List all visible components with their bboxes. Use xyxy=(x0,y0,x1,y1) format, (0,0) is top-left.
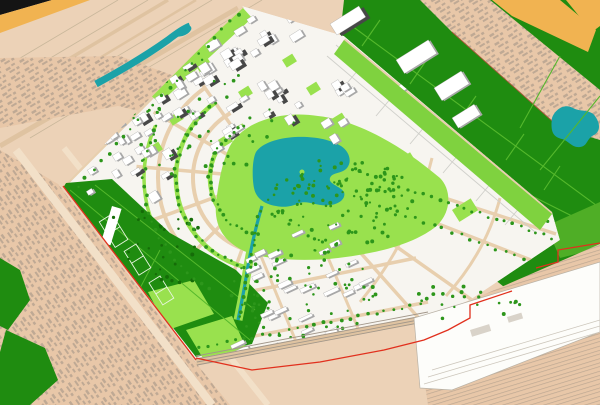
tree xyxy=(307,187,310,190)
tree xyxy=(377,189,380,192)
tree xyxy=(216,147,218,149)
tree xyxy=(158,164,161,167)
tree xyxy=(288,317,291,320)
tree xyxy=(375,216,378,219)
tree xyxy=(307,266,310,269)
tree xyxy=(151,104,154,107)
tree xyxy=(268,333,271,336)
tree xyxy=(419,302,422,305)
tree xyxy=(502,312,506,316)
tree xyxy=(550,238,553,241)
tree xyxy=(249,266,252,269)
tree xyxy=(487,216,490,219)
tree xyxy=(406,207,409,210)
tree xyxy=(244,163,248,167)
tree xyxy=(341,214,344,217)
tree xyxy=(495,218,498,221)
tree xyxy=(368,299,370,301)
tree xyxy=(244,302,248,306)
tree xyxy=(356,314,360,318)
tree xyxy=(375,212,378,215)
tree xyxy=(311,194,315,198)
tree xyxy=(201,59,203,61)
tree xyxy=(438,198,442,202)
tree xyxy=(160,278,164,282)
tree xyxy=(392,175,396,179)
tree xyxy=(189,127,192,130)
tree xyxy=(186,133,190,137)
tree xyxy=(169,155,171,157)
tree xyxy=(281,211,284,214)
tree xyxy=(251,306,255,310)
tree xyxy=(374,175,378,179)
tree xyxy=(127,258,130,261)
tree xyxy=(528,229,531,232)
tree xyxy=(468,238,472,242)
tree xyxy=(317,159,320,162)
tree xyxy=(312,202,315,205)
tree xyxy=(211,158,214,161)
tree xyxy=(127,251,130,254)
tree xyxy=(249,260,253,264)
tree xyxy=(235,224,238,227)
masterplan-3d-render xyxy=(0,0,600,405)
tree xyxy=(206,175,210,179)
tree xyxy=(154,139,157,142)
tree xyxy=(441,292,445,296)
tree xyxy=(137,218,140,221)
tree xyxy=(154,228,158,232)
tree xyxy=(369,201,371,203)
tree xyxy=(387,208,389,210)
tree xyxy=(99,159,102,162)
tree xyxy=(242,266,245,269)
tree xyxy=(335,223,337,225)
tree xyxy=(201,239,204,242)
tree xyxy=(288,328,291,331)
tree xyxy=(230,259,233,262)
tree xyxy=(306,303,308,305)
tree xyxy=(328,201,332,205)
tree xyxy=(164,243,167,246)
tree xyxy=(518,303,521,306)
tree xyxy=(330,312,333,315)
tree xyxy=(283,258,286,261)
tree xyxy=(408,303,411,306)
tree xyxy=(276,279,279,282)
tree xyxy=(339,161,343,165)
tree xyxy=(319,169,323,173)
tree xyxy=(433,223,436,226)
tree xyxy=(233,280,235,282)
tree xyxy=(510,221,514,225)
tree xyxy=(370,182,374,186)
tree xyxy=(335,193,339,197)
tree xyxy=(270,119,273,122)
tree xyxy=(141,176,144,179)
tree xyxy=(223,256,226,259)
tree xyxy=(346,177,348,179)
tree xyxy=(237,74,240,77)
tree xyxy=(240,227,243,230)
tree xyxy=(143,217,145,219)
tree xyxy=(251,140,254,143)
tree xyxy=(203,111,206,114)
tree xyxy=(112,216,115,219)
tree xyxy=(278,332,280,334)
tree xyxy=(391,182,394,185)
tree xyxy=(382,309,385,312)
tree xyxy=(336,325,339,328)
tree xyxy=(186,110,190,114)
tree xyxy=(360,198,363,201)
tree xyxy=(178,153,181,156)
tree xyxy=(169,86,173,90)
tree xyxy=(365,194,368,197)
tree xyxy=(308,183,311,186)
tree xyxy=(207,45,210,48)
tree xyxy=(400,176,403,179)
tree xyxy=(155,125,157,127)
tree xyxy=(147,212,150,215)
tree xyxy=(296,327,298,329)
tree xyxy=(273,267,277,271)
tree xyxy=(347,229,351,233)
tree xyxy=(406,188,409,191)
tree xyxy=(354,167,357,170)
tree xyxy=(381,231,385,235)
tree xyxy=(383,178,386,181)
tree xyxy=(325,325,328,328)
tree xyxy=(273,194,276,197)
tree xyxy=(132,117,134,119)
tree xyxy=(226,155,229,158)
tree xyxy=(288,277,292,281)
tree xyxy=(479,211,482,214)
tree xyxy=(351,168,354,171)
tree xyxy=(410,199,414,203)
tree xyxy=(192,277,195,280)
tree xyxy=(430,195,433,198)
tree xyxy=(189,218,193,222)
tree xyxy=(77,186,79,188)
tree xyxy=(193,245,196,248)
tree xyxy=(383,223,386,226)
tree xyxy=(220,142,224,146)
tree xyxy=(213,80,216,83)
tree xyxy=(158,237,160,239)
tree xyxy=(340,184,343,187)
tree xyxy=(505,250,508,253)
tree xyxy=(325,204,328,207)
tree xyxy=(170,172,174,176)
tree xyxy=(226,340,229,343)
tree xyxy=(143,158,145,160)
tree xyxy=(253,302,256,305)
tree xyxy=(177,116,180,119)
tree xyxy=(232,79,236,83)
tree xyxy=(268,108,270,110)
tree xyxy=(327,224,329,226)
tree xyxy=(355,189,358,192)
tree xyxy=(271,213,274,216)
tree xyxy=(513,301,516,304)
tree xyxy=(397,185,400,188)
tree xyxy=(359,215,362,218)
tree xyxy=(176,160,179,163)
tree xyxy=(209,163,213,167)
tree xyxy=(274,187,278,191)
tree xyxy=(289,219,292,222)
tree xyxy=(364,201,368,205)
tree xyxy=(148,247,150,249)
tree xyxy=(200,282,204,286)
tree xyxy=(384,168,387,171)
tree xyxy=(254,262,258,266)
tree xyxy=(210,249,214,253)
tree xyxy=(321,320,325,324)
tree xyxy=(245,274,249,278)
tree xyxy=(287,223,290,226)
tree xyxy=(212,152,215,155)
tree xyxy=(171,154,173,156)
tree xyxy=(366,173,369,176)
tree xyxy=(159,268,161,270)
tree xyxy=(329,205,332,208)
tree xyxy=(300,203,302,205)
tree xyxy=(248,134,251,137)
tree xyxy=(386,235,390,239)
tree xyxy=(293,187,296,190)
tree xyxy=(93,169,96,172)
tree xyxy=(329,321,332,324)
tree xyxy=(146,110,149,113)
tree xyxy=(441,303,444,306)
tree xyxy=(372,219,375,222)
tree xyxy=(250,337,253,340)
tree xyxy=(256,232,260,236)
tree xyxy=(176,245,179,248)
tree xyxy=(239,310,243,314)
tree xyxy=(378,186,381,189)
tree xyxy=(184,69,187,72)
tree xyxy=(304,284,306,286)
tree xyxy=(122,135,126,139)
tree xyxy=(321,240,324,243)
tree xyxy=(254,280,256,282)
tree xyxy=(192,227,196,231)
tree xyxy=(333,181,335,183)
tree xyxy=(354,230,358,234)
tree xyxy=(176,80,178,82)
tree xyxy=(313,180,315,182)
tree xyxy=(150,221,152,223)
tree xyxy=(285,178,288,181)
tree xyxy=(197,346,200,349)
tree xyxy=(366,312,370,316)
tree xyxy=(347,209,350,212)
tree xyxy=(236,126,239,129)
tree xyxy=(209,193,212,196)
tree xyxy=(361,268,363,270)
tree xyxy=(224,138,228,142)
tree xyxy=(174,263,177,266)
tree xyxy=(152,128,156,132)
tree xyxy=(296,203,299,206)
tree xyxy=(234,338,237,341)
tree xyxy=(244,287,247,290)
tree xyxy=(417,292,421,296)
tree xyxy=(228,19,231,22)
tree xyxy=(168,250,171,253)
tree xyxy=(383,190,386,193)
tree xyxy=(312,293,315,296)
tree xyxy=(338,268,341,271)
tree xyxy=(82,176,86,180)
tree xyxy=(258,321,261,324)
tree xyxy=(254,316,257,319)
tree xyxy=(256,294,259,297)
tree xyxy=(248,116,251,119)
tree xyxy=(250,253,253,256)
tree xyxy=(156,111,159,114)
tree xyxy=(345,287,348,290)
tree xyxy=(230,294,234,298)
tree xyxy=(368,188,372,192)
tree xyxy=(210,187,213,190)
tree xyxy=(198,116,201,119)
tree xyxy=(479,291,482,294)
tree xyxy=(194,235,197,238)
tree xyxy=(394,213,397,216)
tree xyxy=(360,171,362,173)
tree xyxy=(338,180,341,183)
tree xyxy=(414,191,417,194)
tree xyxy=(159,224,161,226)
tree xyxy=(165,275,169,279)
tree xyxy=(340,319,344,323)
tree xyxy=(160,244,163,247)
tree xyxy=(173,259,176,262)
tree xyxy=(211,198,215,202)
tree xyxy=(404,215,407,218)
tree xyxy=(198,97,201,100)
tree xyxy=(336,183,339,186)
tree xyxy=(224,83,226,85)
tree xyxy=(389,207,392,210)
tree xyxy=(392,188,396,192)
tree xyxy=(441,317,445,321)
tree xyxy=(142,185,146,189)
tree xyxy=(327,250,330,253)
tree xyxy=(275,258,279,262)
tree xyxy=(353,195,355,197)
tree xyxy=(333,282,337,286)
tree xyxy=(348,283,351,286)
tree xyxy=(355,322,358,325)
tree xyxy=(498,302,501,305)
tree xyxy=(255,224,258,227)
tree xyxy=(374,292,378,296)
tree xyxy=(229,223,231,225)
tree xyxy=(320,165,322,167)
tree xyxy=(190,253,194,257)
tree xyxy=(146,150,149,153)
tree xyxy=(392,195,395,198)
tree xyxy=(313,237,316,240)
tree xyxy=(276,183,279,186)
tree xyxy=(180,265,182,267)
tree xyxy=(209,181,213,185)
tree xyxy=(451,295,454,298)
tree xyxy=(362,285,365,288)
tree xyxy=(293,121,295,123)
tree xyxy=(243,281,247,285)
tree xyxy=(373,226,376,229)
tree xyxy=(522,258,526,262)
tree xyxy=(180,211,182,213)
tree xyxy=(207,287,211,291)
tree xyxy=(277,210,280,213)
tree xyxy=(225,219,228,222)
tree xyxy=(321,199,324,202)
tree xyxy=(170,279,173,282)
tree xyxy=(336,242,339,245)
tree xyxy=(394,204,397,207)
tree xyxy=(236,263,239,266)
tree xyxy=(262,289,265,292)
tree xyxy=(204,164,208,168)
tree xyxy=(509,301,512,304)
tree xyxy=(462,285,466,289)
tree xyxy=(463,295,466,298)
tree xyxy=(237,13,241,17)
tree xyxy=(176,196,180,200)
tree xyxy=(324,239,327,242)
tree xyxy=(401,194,404,197)
tree xyxy=(223,162,226,165)
tree xyxy=(298,224,300,226)
tree xyxy=(217,203,220,206)
tree xyxy=(233,131,236,134)
tree xyxy=(213,36,217,40)
tree xyxy=(333,165,337,169)
tree xyxy=(312,323,316,327)
tree xyxy=(259,210,262,213)
tree xyxy=(144,203,148,207)
tree xyxy=(186,271,189,274)
tree xyxy=(317,287,320,290)
tree xyxy=(307,234,310,237)
tree xyxy=(421,192,424,195)
tree xyxy=(349,317,353,321)
tree xyxy=(289,253,293,257)
tree xyxy=(238,315,241,318)
tree xyxy=(265,135,269,139)
tree xyxy=(311,184,315,188)
tree xyxy=(422,221,426,225)
tree xyxy=(360,161,364,165)
tree xyxy=(228,135,231,138)
tree xyxy=(534,232,537,235)
tree xyxy=(307,309,310,312)
tree xyxy=(350,278,353,281)
tree xyxy=(160,94,163,97)
tree xyxy=(298,200,300,202)
tree xyxy=(420,299,423,302)
tree xyxy=(379,175,383,179)
tree xyxy=(218,208,222,212)
